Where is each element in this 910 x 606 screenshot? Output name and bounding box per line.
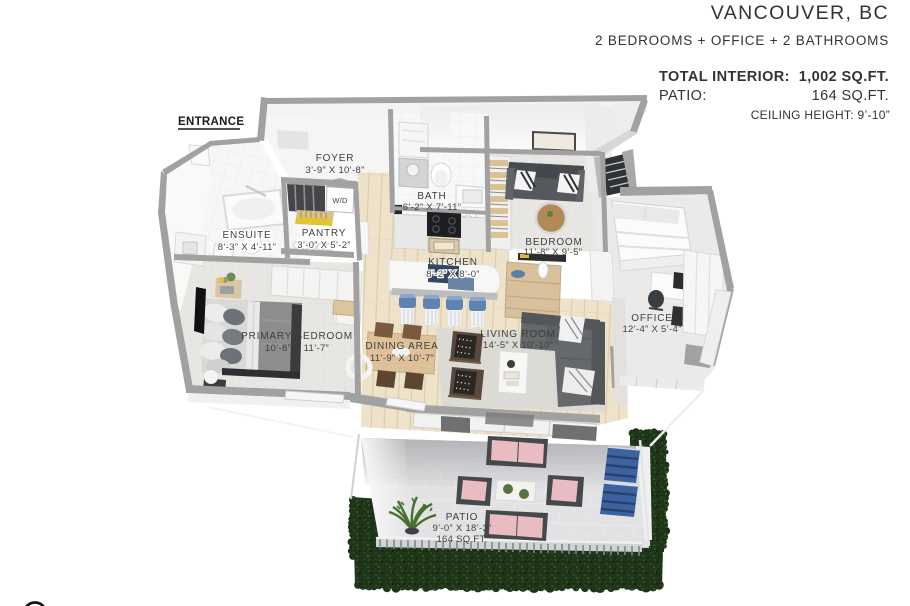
svg-text:1,002 SQ.FT.: 1,002 SQ.FT. <box>799 69 889 85</box>
svg-text:ENSUITE: ENSUITE <box>223 230 272 241</box>
svg-text:6’-2” X 7’-11”: 6’-2” X 7’-11” <box>403 202 461 213</box>
svg-text:11’-9” X 10’-7”: 11’-9” X 10’-7” <box>370 353 434 364</box>
svg-text:OFFICE: OFFICE <box>631 313 672 324</box>
svg-text:PANTRY: PANTRY <box>302 228 346 239</box>
svg-text:3’-9” X 10’-8”: 3’-9” X 10’-8” <box>305 165 364 176</box>
svg-text:12’-4” X 5’-4”: 12’-4” X 5’-4” <box>622 324 681 335</box>
svg-text:W/D: W/D <box>332 196 348 205</box>
svg-text:3’-0” X 5’-2”: 3’-0” X 5’-2” <box>297 240 351 251</box>
svg-text:8’-3” X 4’-11”: 8’-3” X 4’-11” <box>218 242 276 253</box>
svg-text:PRIMARY BEDROOM: PRIMARY BEDROOM <box>241 331 353 342</box>
svg-text:LIVING ROOM: LIVING ROOM <box>480 329 555 340</box>
svg-text:9’-0” X 18’-3”: 9’-0” X 18’-3” <box>432 523 491 534</box>
svg-text:VANCOUVER, BC: VANCOUVER, BC <box>711 2 889 24</box>
svg-text:KITCHEN: KITCHEN <box>428 257 478 268</box>
svg-text:164 SQ.FT.: 164 SQ.FT. <box>436 534 487 545</box>
svg-text:TOTAL INTERIOR:: TOTAL INTERIOR: <box>659 69 790 85</box>
svg-text:14’-5” X 10’-10”: 14’-5” X 10’-10” <box>483 340 553 351</box>
svg-text:BATH: BATH <box>417 191 446 202</box>
svg-text:2 BEDROOMS + OFFICE + 2 BATHRO: 2 BEDROOMS + OFFICE + 2 BATHROOMS <box>595 33 889 48</box>
svg-text:164 SQ.FT.: 164 SQ.FT. <box>812 88 889 104</box>
svg-text:11’-8” X 9’-5”: 11’-8” X 9’-5” <box>524 247 582 258</box>
svg-text:CEILING HEIGHT: 9’-10”: CEILING HEIGHT: 9’-10” <box>751 108 890 122</box>
svg-text:FOYER: FOYER <box>316 153 354 164</box>
svg-text:PATIO: PATIO <box>446 512 479 523</box>
svg-text:PATIO:: PATIO: <box>659 88 707 104</box>
svg-text:10’-8” X 11’-7”: 10’-8” X 11’-7” <box>265 343 329 354</box>
svg-text:DINING AREA: DINING AREA <box>365 341 438 352</box>
svg-text:ENTRANCE: ENTRANCE <box>178 116 244 128</box>
svg-text:8’-2” X 8’-0”: 8’-2” X 8’-0” <box>426 269 480 280</box>
